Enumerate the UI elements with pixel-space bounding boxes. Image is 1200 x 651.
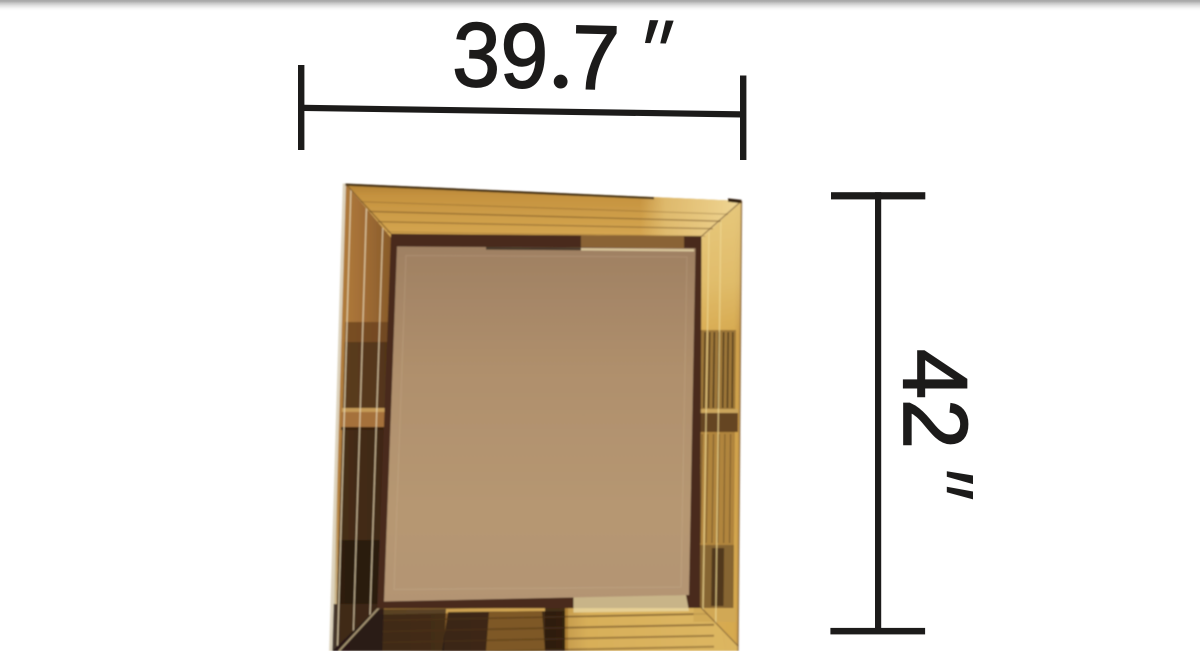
svg-text:39.7: 39.7 (451, 5, 620, 110)
svg-text:42: 42 (884, 349, 985, 449)
